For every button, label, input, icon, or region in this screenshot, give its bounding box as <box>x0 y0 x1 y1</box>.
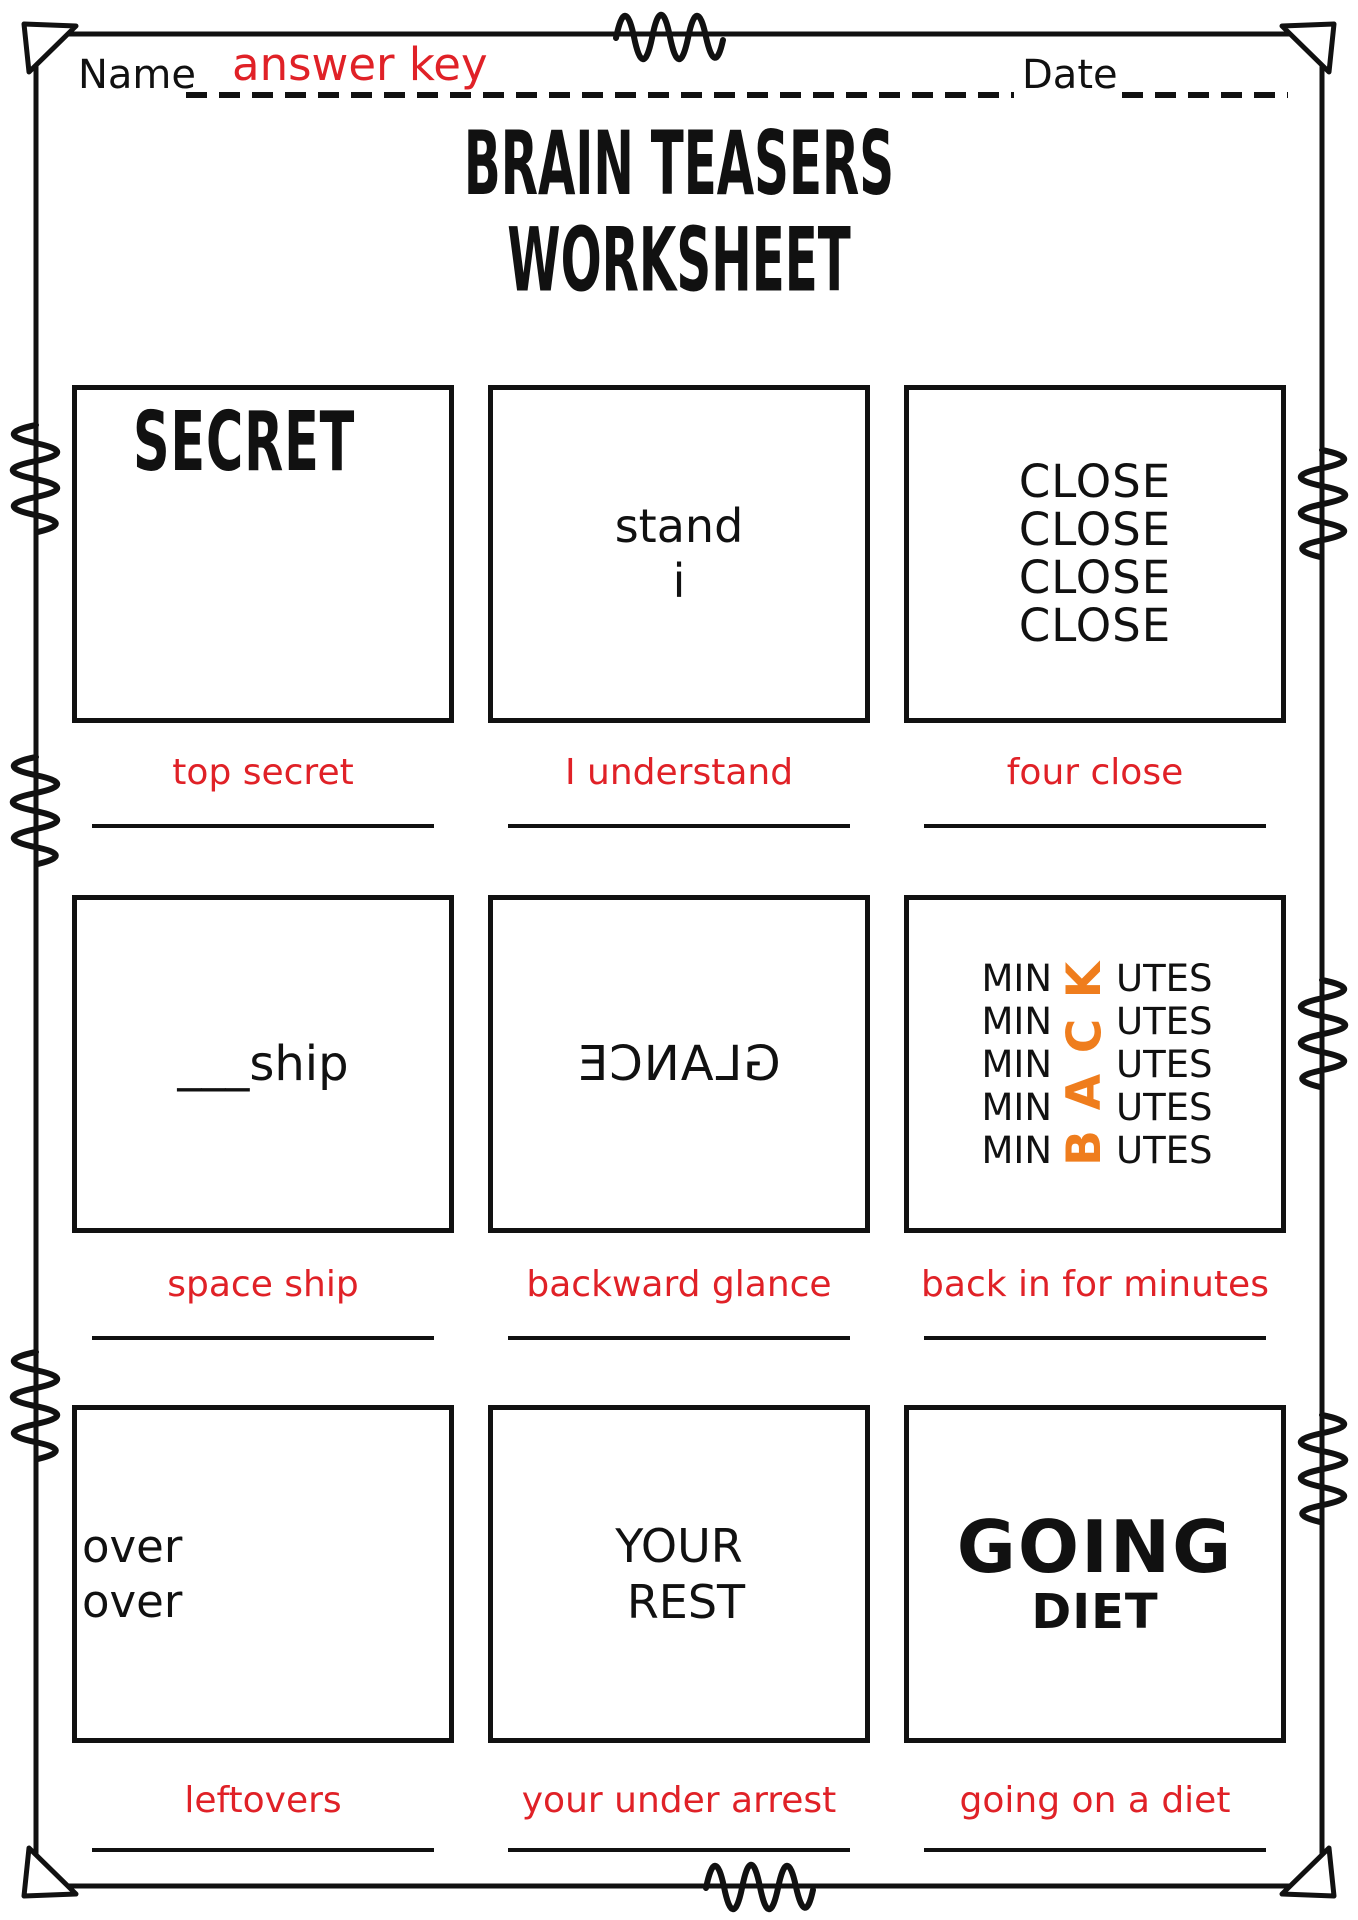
puzzle-3-word: CLOSE <box>1019 458 1171 506</box>
name-blank-line[interactable] <box>186 92 1014 98</box>
puzzle-6-suffix: UTES <box>1116 1086 1226 1129</box>
puzzle-6-suffix: UTES <box>1116 957 1226 1000</box>
puzzle-2-line2: i <box>673 554 686 609</box>
puzzle-9-answer: going on a diet <box>904 1780 1286 1821</box>
puzzle-6-hidden-word: K C A B <box>1052 953 1116 1176</box>
puzzle-box-9: GOING DIET <box>904 1405 1286 1743</box>
puzzle-7-answer: leftovers <box>72 1780 454 1821</box>
squiggle-ornament-left-2 <box>13 757 58 864</box>
puzzle-5-answer: backward glance <box>488 1264 870 1305</box>
puzzle-8-line1: YOUR <box>615 1518 742 1574</box>
puzzle-7-line2: over <box>82 1574 182 1629</box>
puzzle-box-3: CLOSE CLOSE CLOSE CLOSE <box>904 385 1286 723</box>
puzzle-6-hidden-letter: B <box>1057 1131 1111 1167</box>
puzzle-6-hidden-letter: K <box>1057 961 1111 997</box>
squiggle-ornament-left-3 <box>13 1352 58 1459</box>
puzzle-3-word: CLOSE <box>1019 506 1171 554</box>
puzzle-6-minutes-block: MINUTES MINUTES MINUTES MINUTES MINUTES … <box>964 957 1226 1172</box>
puzzle-6-suffix: UTES <box>1116 1043 1226 1086</box>
corner-triangle-bottom-right <box>1282 1848 1334 1896</box>
name-label: Name <box>78 52 196 98</box>
puzzle-box-2: stand i <box>488 385 870 723</box>
answer-blank-line[interactable] <box>924 1848 1266 1852</box>
puzzle-1-answer: top secret <box>72 752 454 793</box>
puzzle-9-line1: GOING <box>957 1509 1233 1585</box>
worksheet-page: Name answer key Date BRAIN TEASERS WORKS… <box>0 0 1358 1920</box>
answer-blank-line[interactable] <box>924 1336 1266 1340</box>
puzzle-9-line2: DIET <box>1031 1585 1158 1639</box>
puzzle-4-answer: space ship <box>72 1264 454 1305</box>
puzzle-7-line1: over <box>82 1519 182 1574</box>
puzzle-6-answer: back in for minutes <box>904 1264 1286 1305</box>
page-title-line1: BRAIN TEASERS <box>149 116 1208 213</box>
puzzle-box-5: GLANCE <box>488 895 870 1233</box>
puzzle-5-mirrored-text: GLANCE <box>577 1036 781 1092</box>
squiggle-ornament-right-1 <box>1301 450 1346 557</box>
answer-blank-line[interactable] <box>508 824 850 828</box>
answer-blank-line[interactable] <box>92 824 434 828</box>
puzzle-6-suffix: UTES <box>1116 1129 1226 1172</box>
corner-triangle-bottom-left <box>24 1848 76 1896</box>
name-answer-text: answer key <box>232 38 488 91</box>
answer-blank-line[interactable] <box>92 1336 434 1340</box>
puzzle-box-8: YOUR REST <box>488 1405 870 1743</box>
puzzle-6-prefix: MIN <box>964 957 1052 1000</box>
puzzle-6-prefix: MIN <box>964 1000 1052 1043</box>
page-title: BRAIN TEASERS WORKSHEET <box>149 116 1208 309</box>
answer-blank-line[interactable] <box>92 1848 434 1852</box>
puzzle-2-line1: stand <box>615 499 744 554</box>
answer-blank-line[interactable] <box>508 1848 850 1852</box>
puzzle-box-4: ___ship <box>72 895 454 1233</box>
puzzle-6-prefix: MIN <box>964 1043 1052 1086</box>
squiggle-ornament-left-1 <box>13 425 58 532</box>
answer-blank-line[interactable] <box>924 824 1266 828</box>
page-title-line2: WORKSHEET <box>149 213 1208 310</box>
puzzle-3-word: CLOSE <box>1019 602 1171 650</box>
puzzle-1-text: SECRET <box>133 400 355 484</box>
squiggle-ornament-right-2 <box>1301 980 1346 1087</box>
puzzle-box-7: over over <box>72 1405 454 1743</box>
corner-triangle-top-right <box>1282 24 1334 72</box>
puzzle-6-hidden-letter: C <box>1057 1019 1111 1054</box>
puzzle-6-prefix: MIN <box>964 1086 1052 1129</box>
puzzle-box-6: MINUTES MINUTES MINUTES MINUTES MINUTES … <box>904 895 1286 1233</box>
corner-triangle-top-left <box>24 24 76 72</box>
puzzle-6-hidden-letter: A <box>1057 1074 1111 1110</box>
puzzle-6-prefix: MIN <box>964 1129 1052 1172</box>
puzzle-2-answer: I understand <box>488 752 870 793</box>
puzzle-8-answer: your under arrest <box>488 1780 870 1821</box>
date-label: Date <box>1022 52 1118 98</box>
squiggle-ornament-top <box>616 15 723 60</box>
puzzle-3-answer: four close <box>904 752 1286 793</box>
squiggle-ornament-bottom <box>706 1865 813 1910</box>
puzzle-6-suffix: UTES <box>1116 1000 1226 1043</box>
puzzle-8-line2: REST <box>627 1574 745 1630</box>
puzzle-4-text: ___ship <box>177 1036 348 1092</box>
answer-blank-line[interactable] <box>508 1336 850 1340</box>
puzzle-3-word: CLOSE <box>1019 554 1171 602</box>
squiggle-ornament-right-3 <box>1301 1415 1346 1522</box>
date-blank-line[interactable] <box>1122 92 1288 98</box>
puzzle-box-1: SECRET <box>72 385 454 723</box>
